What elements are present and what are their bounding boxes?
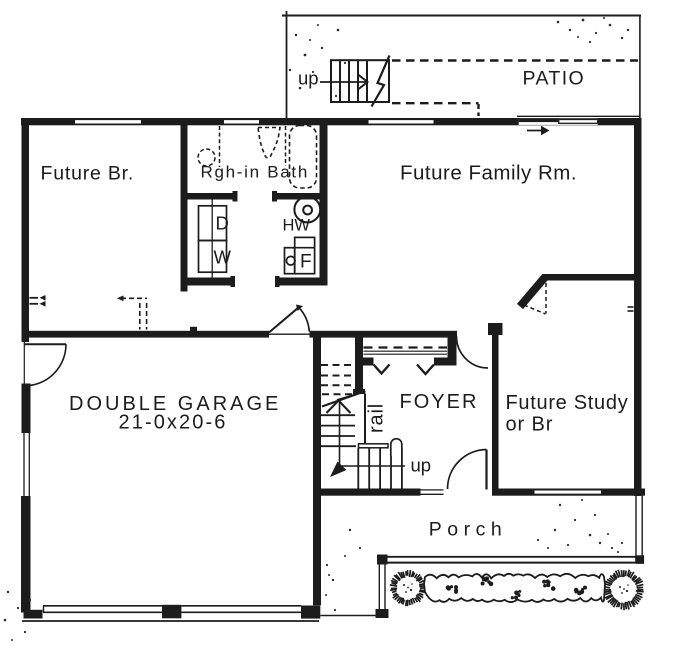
svg-text:21-0x20-6: 21-0x20-6 (119, 412, 228, 434)
svg-text:PATIO: PATIO (523, 68, 586, 90)
svg-text:Rgh-in Bath: Rgh-in Bath (201, 163, 309, 182)
svg-text:up: up (411, 454, 432, 475)
svg-text:Future Family Rm.: Future Family Rm. (400, 162, 577, 185)
svg-text:Future Study: Future Study (506, 392, 629, 414)
svg-text:HW: HW (283, 217, 311, 235)
svg-text:Porch: Porch (429, 519, 507, 541)
svg-text:rail: rail (366, 403, 388, 433)
svg-text:up: up (298, 68, 319, 89)
svg-text:or Br: or Br (506, 414, 554, 436)
svg-text:FOYER: FOYER (400, 391, 479, 413)
svg-text:D: D (216, 213, 229, 234)
svg-text:F: F (300, 252, 312, 273)
svg-text:W: W (214, 247, 232, 268)
svg-text:Future Br.: Future Br. (41, 163, 135, 185)
